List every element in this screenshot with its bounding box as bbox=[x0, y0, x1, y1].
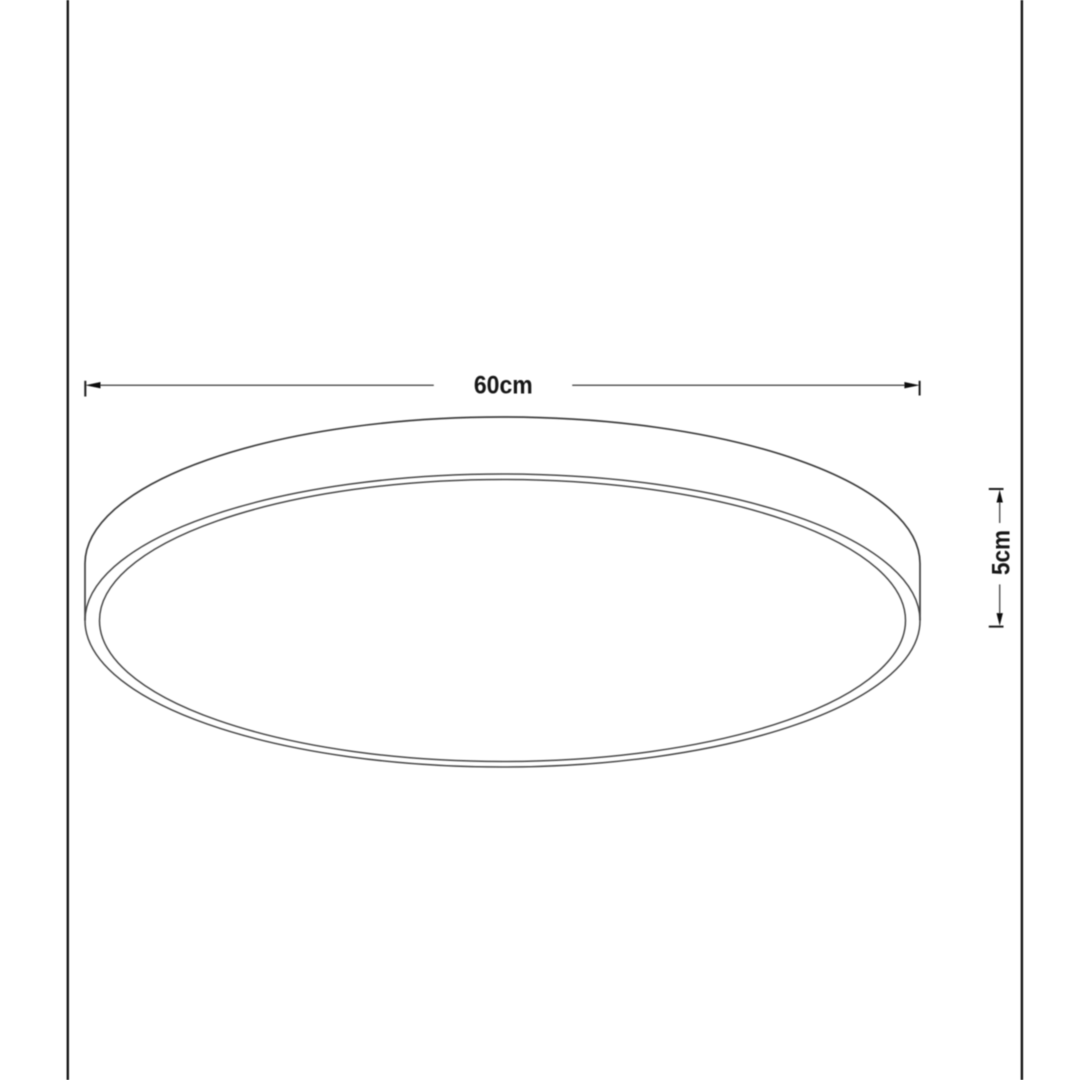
svg-text:60cm: 60cm bbox=[474, 372, 533, 400]
svg-text:5cm: 5cm bbox=[987, 530, 1015, 575]
